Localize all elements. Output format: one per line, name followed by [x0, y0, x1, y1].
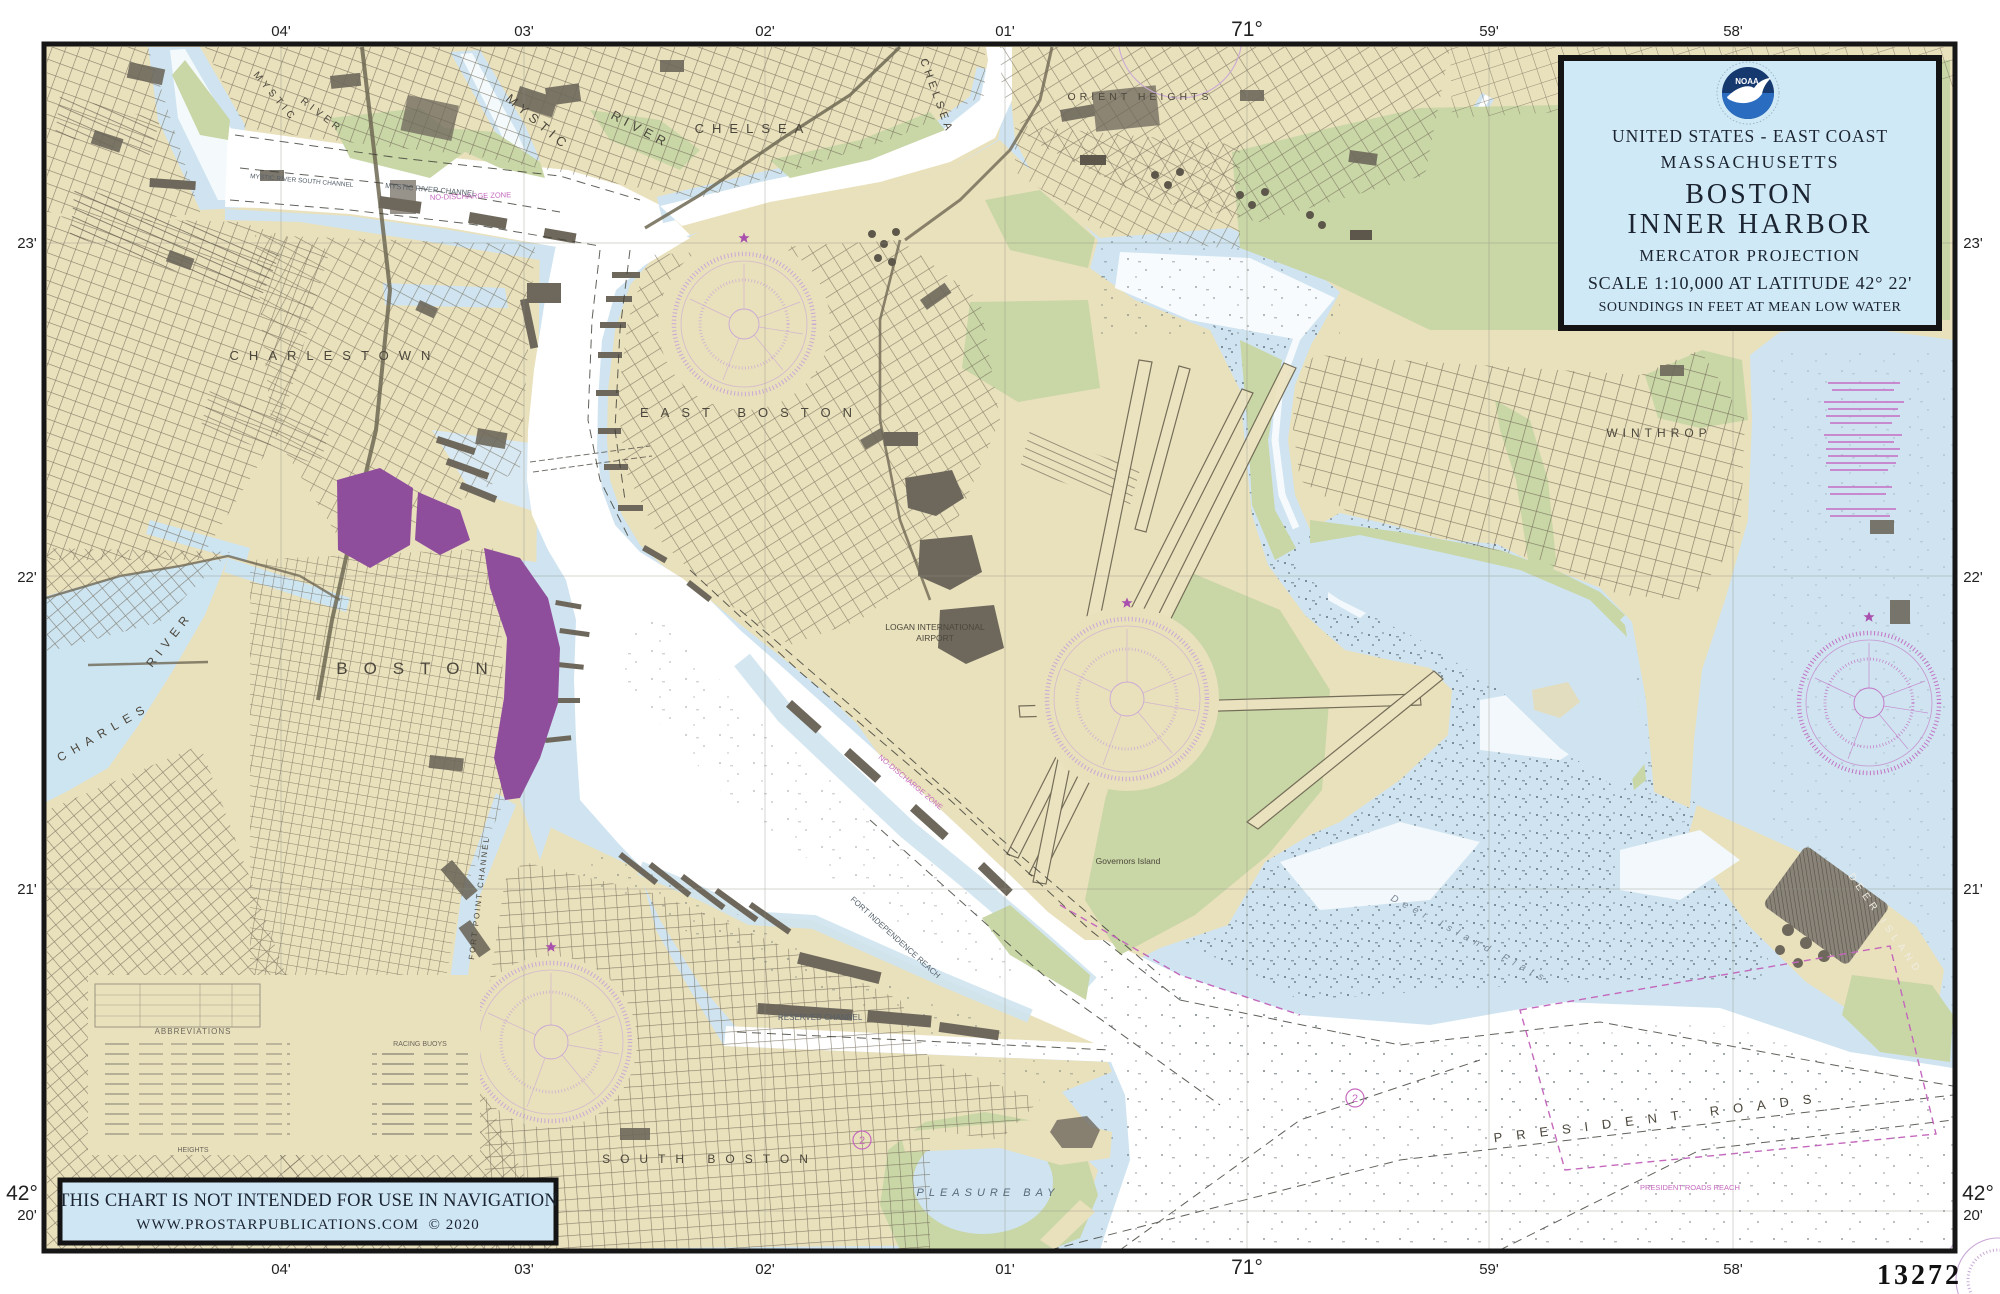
svg-text:01': 01'	[995, 1261, 1015, 1278]
svg-text:21': 21'	[1963, 881, 1983, 898]
svg-text:58': 58'	[1723, 23, 1743, 40]
svg-text:42°: 42°	[6, 1182, 38, 1205]
svg-text:CHELSEA: CHELSEA	[695, 121, 812, 136]
svg-text:04': 04'	[271, 1261, 291, 1278]
svg-text:WWW.PROSTARPUBLICATIONS.COM ©: WWW.PROSTARPUBLICATIONS.COM © 2020	[136, 1217, 479, 1233]
svg-text:71°: 71°	[1231, 1256, 1263, 1279]
svg-text:59': 59'	[1479, 1261, 1499, 1278]
svg-text:RESERVED CHANNEL: RESERVED CHANNEL	[778, 1013, 863, 1022]
svg-text:MASSACHUSETTS: MASSACHUSETTS	[1660, 152, 1839, 172]
svg-text:ABBREVIATIONS: ABBREVIATIONS	[155, 1027, 232, 1036]
svg-text:23': 23'	[1963, 235, 1983, 252]
svg-text:HEIGHTS: HEIGHTS	[177, 1147, 208, 1154]
svg-text:INNER HARBOR: INNER HARBOR	[1627, 209, 1872, 240]
svg-text:01': 01'	[995, 23, 1015, 40]
svg-text:PRESIDENT ROADS REACH: PRESIDENT ROADS REACH	[1640, 1183, 1740, 1192]
svg-text:Governors Island: Governors Island	[1096, 856, 1161, 866]
svg-text:21': 21'	[17, 881, 37, 898]
svg-text:59': 59'	[1479, 23, 1499, 40]
svg-text:20': 20'	[17, 1207, 37, 1224]
svg-text:MERCATOR PROJECTION: MERCATOR PROJECTION	[1639, 246, 1860, 265]
svg-text:02': 02'	[755, 23, 775, 40]
svg-text:UNITED STATES - EAST COAST: UNITED STATES - EAST COAST	[1612, 126, 1888, 146]
svg-text:WINTHROP: WINTHROP	[1606, 426, 1711, 440]
svg-text:2: 2	[1352, 1093, 1358, 1105]
svg-text:13272: 13272	[1877, 1260, 1962, 1291]
svg-text:22': 22'	[17, 569, 37, 586]
svg-text:71°: 71°	[1231, 18, 1263, 41]
svg-text:22': 22'	[1963, 569, 1983, 586]
svg-text:AIRPORT: AIRPORT	[916, 633, 954, 643]
svg-text:EAST BOSTON: EAST BOSTON	[640, 405, 864, 420]
svg-text:RACING BUOYS: RACING BUOYS	[393, 1041, 447, 1048]
svg-text:NOAA: NOAA	[1735, 77, 1759, 86]
svg-text:ORIENT HEIGHTS: ORIENT HEIGHTS	[1067, 91, 1212, 103]
svg-text:SCALE 1:10,000 AT LATITUDE 42°: SCALE 1:10,000 AT LATITUDE 42° 22'	[1588, 273, 1912, 293]
svg-text:2: 2	[859, 1135, 865, 1147]
svg-text:03': 03'	[514, 1261, 534, 1278]
svg-text:SOUTH BOSTON: SOUTH BOSTON	[602, 1152, 818, 1166]
svg-text:02': 02'	[755, 1261, 775, 1278]
svg-text:23': 23'	[17, 235, 37, 252]
svg-text:PLEASURE BAY: PLEASURE BAY	[917, 1187, 1060, 1199]
svg-text:04': 04'	[271, 23, 291, 40]
svg-text:CHARLESTOWN: CHARLESTOWN	[230, 348, 441, 363]
svg-text:03': 03'	[514, 23, 534, 40]
svg-text:BOSTON: BOSTON	[336, 659, 503, 678]
svg-text:BOSTON: BOSTON	[1685, 179, 1815, 210]
svg-text:58': 58'	[1723, 1261, 1743, 1278]
svg-text:THIS CHART IS NOT INTENDED FOR: THIS CHART IS NOT INTENDED FOR USE IN NA…	[58, 1191, 558, 1211]
svg-text:20': 20'	[1963, 1207, 1983, 1224]
svg-text:42°: 42°	[1962, 1182, 1994, 1205]
svg-text:LOGAN INTERNATIONAL: LOGAN INTERNATIONAL	[885, 622, 985, 632]
svg-text:SOUNDINGS IN FEET AT MEAN LOW: SOUNDINGS IN FEET AT MEAN LOW WATER	[1599, 300, 1902, 315]
